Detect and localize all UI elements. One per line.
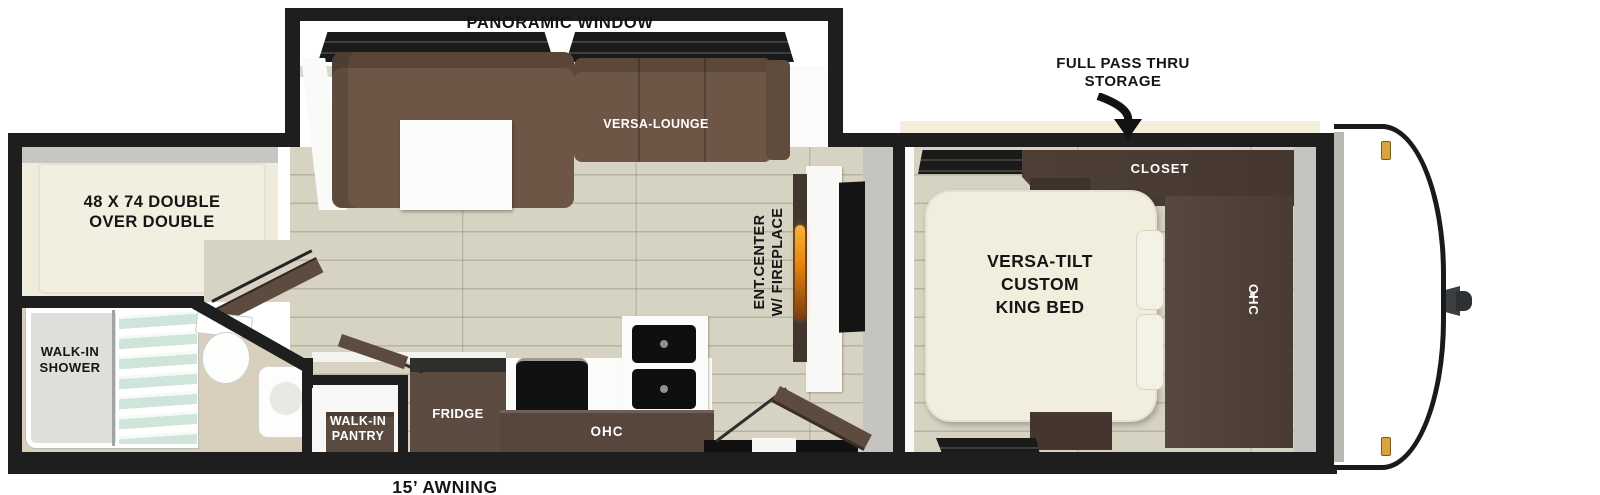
bedroom-bench <box>1030 412 1112 450</box>
pantry-wall-left <box>302 382 312 454</box>
awning-label: 15’ AWNING <box>360 477 530 495</box>
ent-center-label: ENT.CENTER W/ FIREPLACE <box>752 177 788 347</box>
travel-trailer-floorplan: VERSA-LOUNGE ENT.CENTER W/ FIREPLACE FRI… <box>0 0 1600 495</box>
bedroom-divider-wall <box>893 147 905 452</box>
pass-thru-storage-label: FULL PASS THRU STORAGE <box>1028 55 1218 92</box>
bedroom-ohc-cabinet <box>1165 196 1293 448</box>
bottom-wall <box>8 452 1337 474</box>
slideout-wall-left <box>285 8 300 147</box>
bedroom-ohc-label: OHC <box>1245 280 1261 320</box>
bed-pillow-bottom <box>1136 314 1164 390</box>
sink-faucet-upper <box>660 340 668 348</box>
bedroom-right-wall-face <box>1294 147 1316 452</box>
tv-screen <box>839 181 865 332</box>
ent-center-wall-face <box>863 147 896 452</box>
marker-light-bottom <box>1381 437 1391 456</box>
sofa-armrest <box>766 60 790 160</box>
front-cap-inner-face <box>1334 132 1344 462</box>
front-cap <box>1334 124 1446 470</box>
slideout-wall-right <box>828 8 843 147</box>
bunk-bottom-wall <box>8 296 204 308</box>
cooktop <box>516 358 588 415</box>
marker-light-top <box>1381 141 1391 160</box>
kitchen-ohc-label: OHC <box>500 424 714 440</box>
fridge-top <box>410 358 506 372</box>
hitch-coupler <box>1456 291 1472 311</box>
sofa-table <box>400 120 512 210</box>
king-bed-label: VERSA-TILT CUSTOM KING BED <box>940 250 1140 318</box>
fireplace-flame <box>795 225 805 320</box>
pantry-label: WALK-IN PANTRY <box>316 414 400 445</box>
bunk-bed-label: 48 X 74 DOUBLE OVER DOUBLE <box>38 192 266 232</box>
bed-pillow-top <box>1136 230 1164 310</box>
shower-shelves <box>116 312 197 444</box>
versa-lounge-label: VERSA-LOUNGE <box>576 117 736 132</box>
slideout-right-wall-face <box>790 66 828 147</box>
closet-label: CLOSET <box>1080 161 1240 177</box>
ent-center-cabinet <box>806 166 842 392</box>
pantry-wall-top <box>302 375 408 385</box>
sink-faucet-lower <box>660 385 668 393</box>
front-storage-wall <box>1316 140 1334 462</box>
pantry-wall-right <box>398 375 408 454</box>
panoramic-window-label: PANORAMIC WINDOW <box>400 13 720 33</box>
shower-glass-door <box>112 310 115 446</box>
sofa-lounge-section <box>574 58 772 162</box>
bunk-room-wall-shade <box>22 147 278 163</box>
fridge-label: FRIDGE <box>410 406 506 422</box>
walk-in-shower-label: WALK-IN SHOWER <box>30 344 110 376</box>
top-wall-rear <box>8 133 290 147</box>
bedroom-wall-face <box>905 147 914 452</box>
pass-thru-arrow-icon <box>1090 93 1146 139</box>
